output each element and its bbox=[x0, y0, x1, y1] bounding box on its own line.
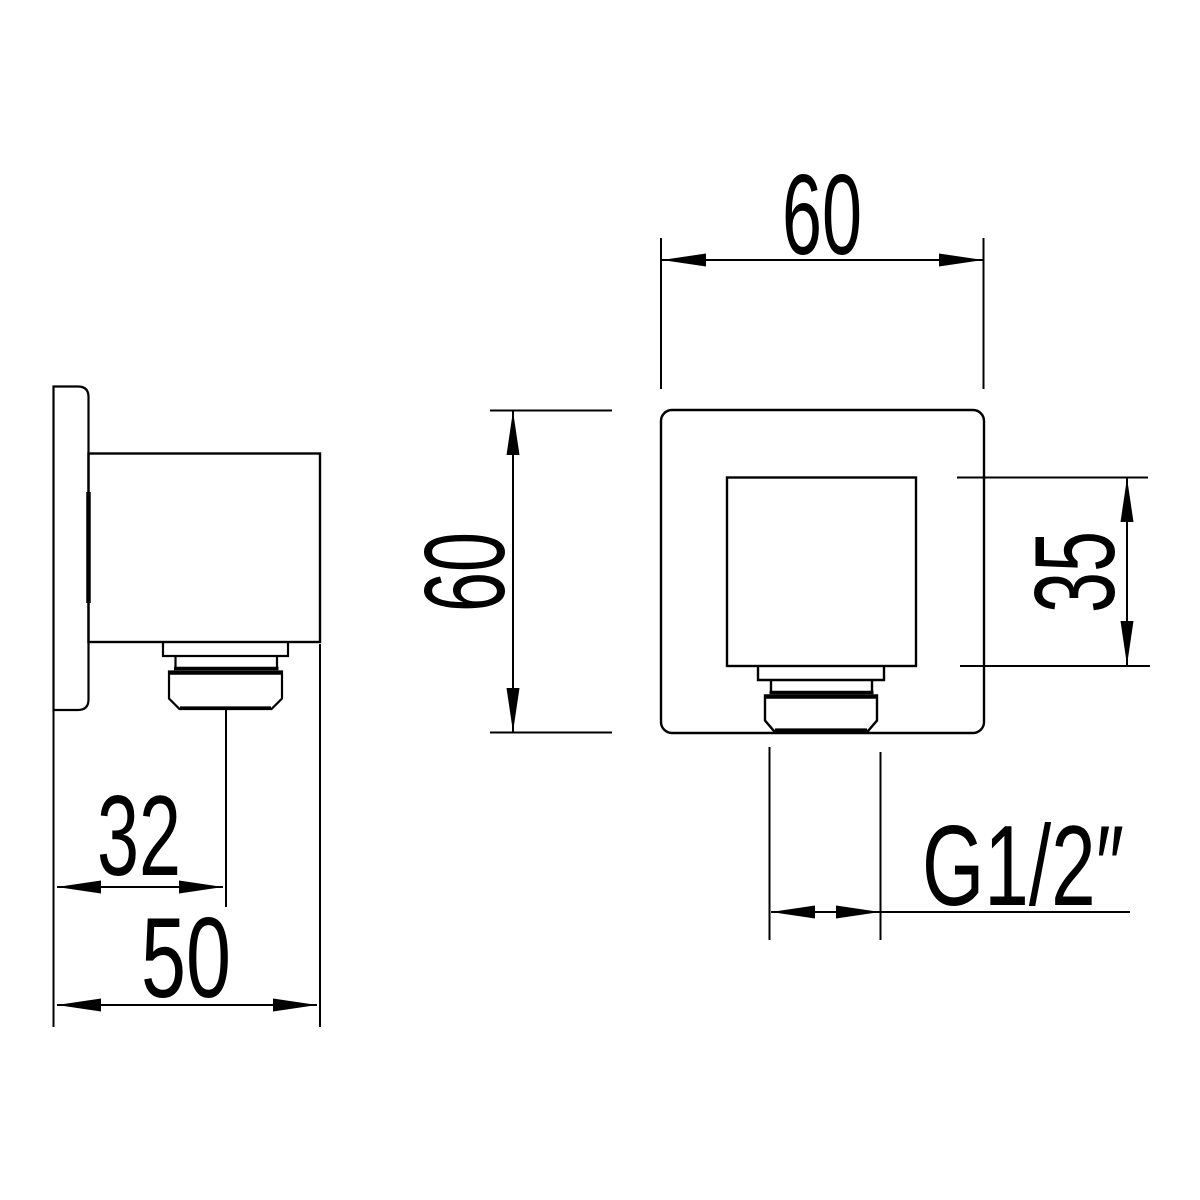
arrowhead-right bbox=[273, 999, 317, 1012]
arrowhead-top bbox=[1121, 478, 1134, 522]
boss-face bbox=[727, 478, 916, 667]
dimension-front-height: 60 bbox=[402, 411, 612, 733]
nozzle-nut-profile bbox=[169, 672, 282, 710]
arrowhead-top bbox=[507, 411, 520, 455]
dim-front-height-label: 60 bbox=[402, 532, 529, 612]
nozzle-step1-profile bbox=[163, 643, 288, 657]
arrowhead-bottom bbox=[507, 688, 520, 732]
front-nozzle-step1 bbox=[758, 666, 884, 680]
front-nozzle-nut bbox=[765, 696, 877, 732]
wall-plate-face bbox=[661, 410, 984, 733]
arrowhead-right bbox=[939, 254, 983, 267]
dim-front-width-label: 60 bbox=[782, 152, 862, 279]
front-nozzle-step2 bbox=[771, 680, 872, 693]
dimension-boss-height: 35 bbox=[957, 478, 1150, 667]
nozzle-step2-profile bbox=[176, 656, 278, 669]
wall-plate-profile bbox=[54, 387, 89, 711]
arrowhead-left bbox=[57, 999, 101, 1012]
front-view bbox=[661, 410, 984, 733]
dimension-front-width: 60 bbox=[661, 152, 984, 389]
dim-outlet-offset-label: 32 bbox=[97, 773, 181, 900]
dim-mount-depth-label: 50 bbox=[141, 895, 231, 1022]
arrowhead-left bbox=[57, 881, 101, 894]
arrowhead-right bbox=[836, 906, 880, 919]
technical-drawing-canvas: 60 60 35 G1/2″ 32 bbox=[0, 0, 1200, 1200]
arrowhead-right bbox=[179, 881, 223, 894]
dim-thread-label: G1/2″ bbox=[922, 803, 1124, 930]
side-view bbox=[54, 387, 321, 711]
body-profile bbox=[89, 454, 321, 643]
arrowhead-left bbox=[771, 906, 815, 919]
arrowhead-bottom bbox=[1121, 621, 1134, 665]
dimension-thread: G1/2″ bbox=[770, 747, 1131, 940]
arrowhead-left bbox=[662, 254, 706, 267]
dim-boss-height-label: 35 bbox=[1012, 531, 1139, 613]
